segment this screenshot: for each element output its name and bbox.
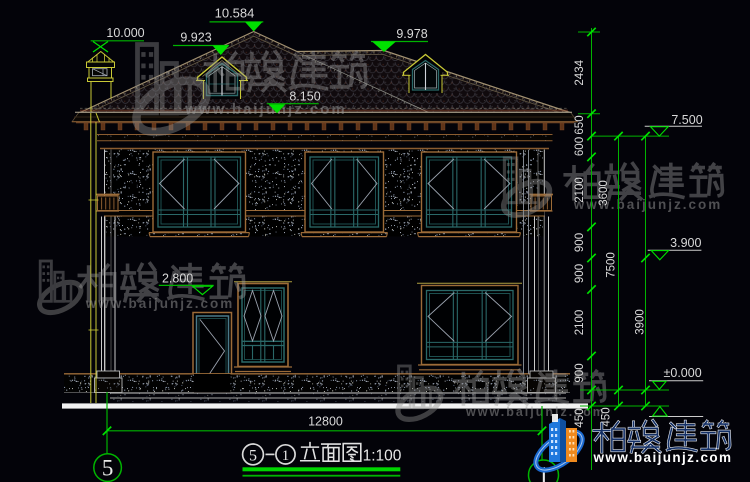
svg-text:5: 5 [249,447,257,464]
svg-text:www.baijunjz.com: www.baijunjz.com [573,197,723,212]
svg-text:650: 650 [574,115,586,134]
svg-text:www.baijunjz.com: www.baijunjz.com [184,101,346,118]
svg-text:900: 900 [574,233,586,252]
svg-text:±0.000: ±0.000 [664,366,702,380]
svg-text:3900: 3900 [635,309,647,335]
svg-text:900: 900 [574,363,586,382]
svg-text:2434: 2434 [574,59,586,85]
svg-text:900: 900 [574,264,586,283]
svg-text:www.baijunjz.com: www.baijunjz.com [593,450,733,465]
svg-text:3600: 3600 [598,180,610,206]
svg-text:1:100: 1:100 [363,447,402,464]
svg-text:12800: 12800 [308,415,343,429]
svg-text:2100: 2100 [574,310,586,336]
svg-text:8.150: 8.150 [289,89,320,103]
svg-text:2.800: 2.800 [162,271,193,285]
svg-text:7500: 7500 [606,252,618,278]
svg-text:9.978: 9.978 [396,27,427,41]
svg-text:1: 1 [282,448,290,464]
svg-text:7.500: 7.500 [671,113,702,127]
svg-text:10.584: 10.584 [215,6,255,21]
svg-text:9.923: 9.923 [180,30,211,44]
svg-text:2100: 2100 [574,177,586,203]
svg-text:10.000: 10.000 [106,26,144,40]
svg-text:5: 5 [102,456,114,481]
svg-text:450: 450 [574,408,586,427]
svg-text:www.baijunjz.com: www.baijunjz.com [85,296,235,311]
svg-text:3.900: 3.900 [670,236,701,250]
svg-text:600: 600 [574,137,586,156]
